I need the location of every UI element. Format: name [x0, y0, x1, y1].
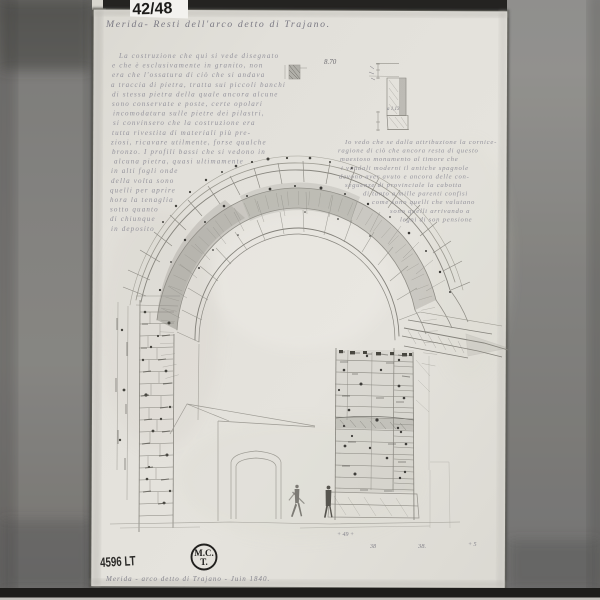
svg-text:ragione di ciò che ancora rest: ragione di ciò che ancora resta di quest…	[338, 148, 479, 155]
svg-text:di chiunque: di chiunque	[110, 215, 156, 223]
svg-text:8.70: 8.70	[324, 58, 337, 66]
svg-text:a traccia di pietra, tratta su: a traccia di pietra, tratta sui piccoli …	[111, 81, 286, 89]
svg-text:si convinsero che la costruzio: si convinsero che la costruzione era	[113, 119, 256, 127]
svg-text:seguenze di provinciale la cab: seguenze di provinciale la cabotta	[345, 182, 462, 189]
svg-text:era che l'ossatura di ciò che: era che l'ossatura di ciò che si andava	[112, 71, 265, 79]
svg-text:maestoso monumento al timore c: maestoso monumento al timore che	[340, 156, 458, 163]
svg-text:incomodatura sulle pietre dei: incomodatura sulle pietre dei pilastri,	[113, 110, 265, 118]
svg-text:a 1,13: a 1,13	[387, 107, 400, 112]
svg-text:alcuna pietra, quasi ultimamen: alcuna pietra, quasi ultimamente	[114, 158, 244, 166]
svg-text:Merida- Resti dell'arco detto: Merida- Resti dell'arco detto di Trajano…	[105, 19, 331, 30]
svg-text:i vandali moderni il antiche s: i vandali moderni il antiche spagnole	[341, 165, 469, 172]
svg-text:di stessa pietra della quale a: di stessa pietra della quale ancora alcu…	[112, 90, 279, 98]
svg-text:in deposito: in deposito	[111, 225, 155, 233]
svg-text:devono aver avuto e ancora del: devono aver avuto e ancora delle con-	[339, 173, 470, 180]
svg-text:Merida - arco detto di Trajano: Merida - arco detto di Trajano - Juin 18…	[105, 575, 270, 583]
svg-text:di tanto a mille parenti confi: di tanto a mille parenti confisi	[363, 191, 468, 198]
svg-text:sotto quanto: sotto quanto	[110, 206, 159, 214]
svg-text:e che è esclusivamente in gran: e che è esclusivamente in granito, non	[112, 62, 264, 70]
svg-text:ziosi, ricavare utilmente, for: ziosi, ricavare utilmente, forse qualche	[110, 138, 267, 146]
svg-text:bronzo. I profili bassi che si: bronzo. I profili bassi che si vedono in	[112, 148, 266, 156]
svg-text:4596 LT: 4596 LT	[100, 554, 137, 571]
svg-text:T.: T.	[200, 557, 208, 567]
svg-text:+ 5: + 5	[468, 542, 477, 548]
svg-text:della volta sono: della volta sono	[111, 177, 174, 185]
svg-text:La costruzione che qui si vede: La costruzione che qui si vede disegnato	[118, 52, 279, 60]
svg-text:in alti fogli onde: in alti fogli onde	[111, 167, 178, 175]
svg-text:38: 38	[369, 544, 376, 550]
svg-text:come sono quelli che valutano: come sono quelli che valutano	[372, 199, 475, 206]
svg-text:sono conservate e poste, certe: sono conservate e poste, certe opolari	[112, 100, 263, 108]
svg-text:legni di son pensione: legni di son pensione	[400, 216, 472, 223]
svg-text:38.: 38.	[417, 543, 427, 550]
svg-text:hora la tenaglia: hora la tenaglia	[110, 196, 174, 204]
svg-text:sono quelli arrivando a: sono quelli arrivando a	[390, 208, 470, 215]
svg-text:42/48: 42/48	[132, 0, 173, 18]
svg-text:+ 49 +: + 49 +	[337, 531, 354, 538]
svg-text:Io vedo che se dalla attribuzi: Io vedo che se dalla attribuzione la cor…	[344, 139, 497, 146]
svg-text:tutta rivestita di materiali p: tutta rivestita di materiali più pre-	[112, 129, 251, 137]
svg-text:quelli per aprire: quelli per aprire	[110, 186, 176, 194]
